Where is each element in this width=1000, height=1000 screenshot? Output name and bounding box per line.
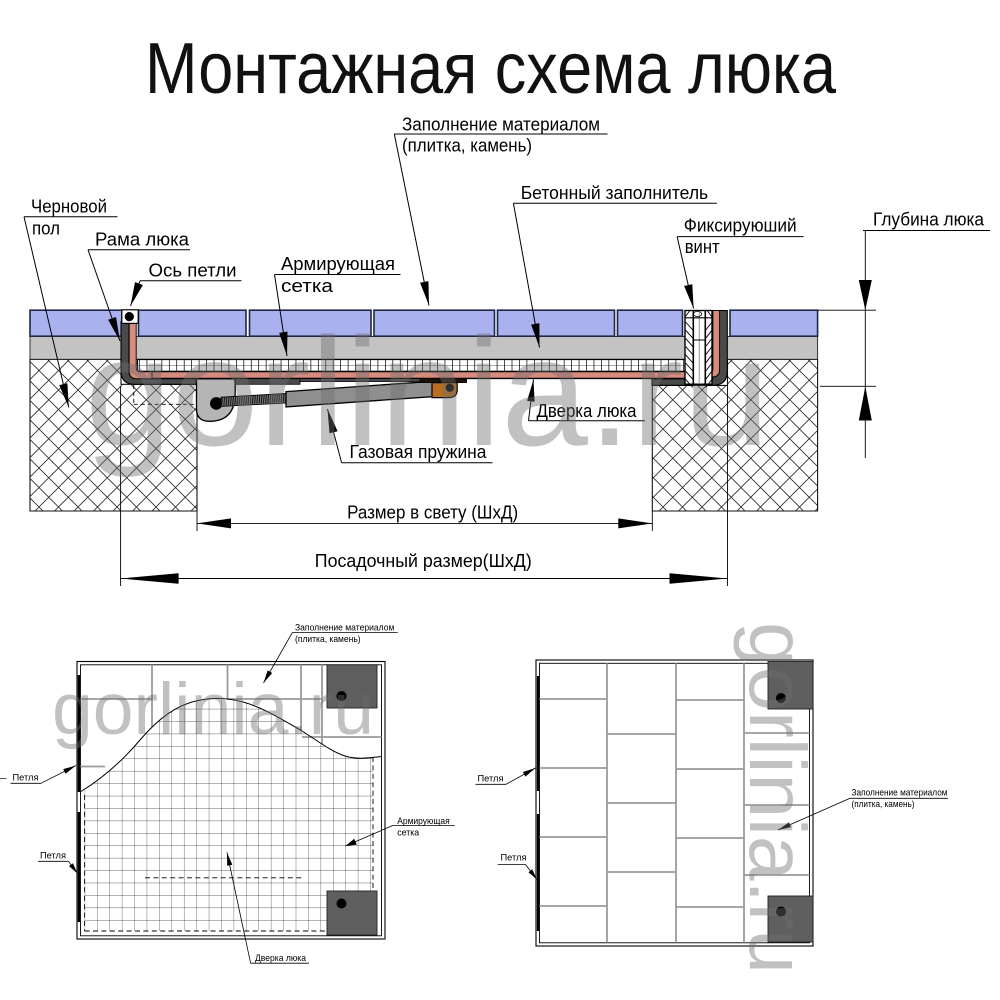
svg-text:Петля: Петля xyxy=(40,851,66,861)
svg-text:Петля: Петля xyxy=(478,774,504,784)
svg-text:Черновой: Черновой xyxy=(31,196,107,217)
svg-text:Фиксируюший: Фиксируюший xyxy=(684,215,797,236)
svg-text:Размер в свету (ШхД): Размер в свету (ШхД) xyxy=(347,502,518,522)
svg-text:Рама люка: Рама люка xyxy=(95,229,190,250)
svg-text:Дверка люка: Дверка люка xyxy=(255,953,306,963)
svg-text:Армирующая: Армирующая xyxy=(397,816,450,826)
svg-text:gorlinia.ru: gorlinia.ru xyxy=(52,669,374,750)
svg-text:сетка: сетка xyxy=(281,275,334,296)
svg-text:пол: пол xyxy=(32,218,60,239)
svg-text:Посадочный размер(ШхД): Посадочный размер(ШхД) xyxy=(315,551,532,571)
svg-text:(плитка, камень): (плитка, камень) xyxy=(295,634,361,644)
svg-text:Монтажная схема люка: Монтажная схема люка xyxy=(145,29,837,109)
svg-text:сетка: сетка xyxy=(397,827,419,837)
svg-text:Петля: Петля xyxy=(501,853,527,863)
svg-text:(плитка, камень): (плитка, камень) xyxy=(402,135,532,156)
svg-text:винт: винт xyxy=(685,236,720,257)
svg-text:Ось петли: Ось петли xyxy=(149,260,237,281)
svg-text:Глубина люка: Глубина люка xyxy=(873,209,985,230)
svg-text:gorlinia.ru: gorlinia.ru xyxy=(733,622,822,974)
svg-text:(плитка, камень): (плитка, камень) xyxy=(852,799,915,809)
svg-text:Бетонный заполнитель: Бетонный заполнитель xyxy=(521,182,709,203)
svg-text:Заполнение материалом: Заполнение материалом xyxy=(402,114,600,135)
svg-text:Армирующая: Армирующая xyxy=(281,253,395,274)
svg-text:Петля: Петля xyxy=(13,773,39,783)
svg-text:gorlinia.ru: gorlinia.ru xyxy=(85,306,770,478)
svg-text:Заполнение материалом: Заполнение материалом xyxy=(852,788,948,798)
svg-text:Заполнение материалом: Заполнение материалом xyxy=(295,623,394,633)
